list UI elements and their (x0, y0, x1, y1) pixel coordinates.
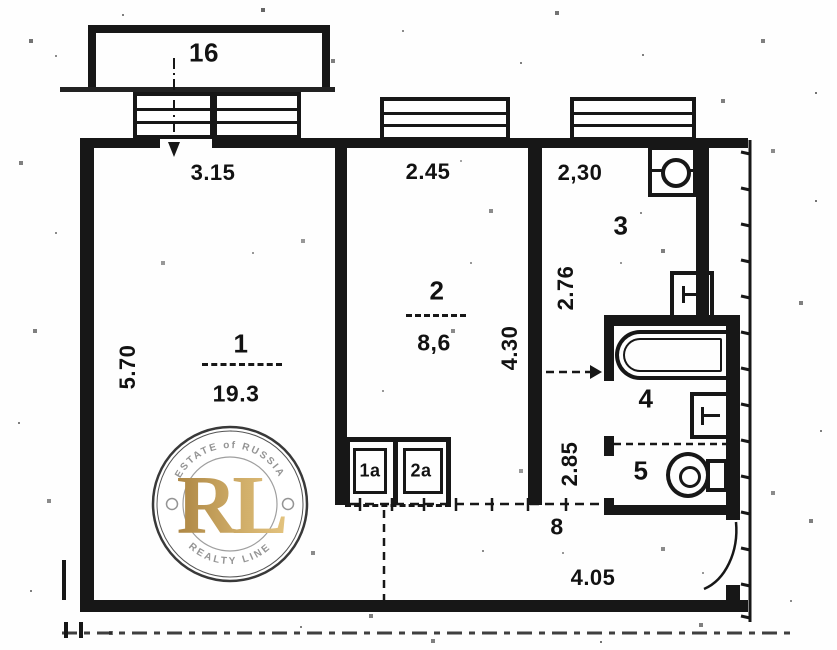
wall-bath-left-upper (604, 315, 614, 381)
dim-kitchen-depth: 2.76 (553, 266, 579, 311)
dim-living-depth: 5.70 (115, 345, 141, 390)
room2-window (380, 97, 510, 141)
closet-b-label: 2a (410, 461, 431, 482)
stamp-monogram: RL (177, 459, 286, 552)
toilet-icon (666, 452, 710, 498)
room2-fraction-rule (406, 314, 466, 317)
room2-area-label: 8,6 (417, 330, 450, 357)
wall-wc-bottom (604, 505, 740, 515)
closet-divider (393, 440, 398, 504)
stamp-arc-bottom-text: REALTY LINE (186, 541, 274, 567)
window-pane-line (137, 108, 297, 111)
stove-burner (661, 158, 691, 188)
axis-arrow-icon (168, 142, 180, 157)
washbasin-icon (690, 392, 736, 439)
realty-line-watermark-stamp: ESTATE of RUSSIA REALTY LINE RL (149, 423, 311, 585)
edge-hatch-ticks (741, 152, 750, 618)
dim-room2-depth: 4.30 (497, 326, 523, 371)
stove-icon (648, 146, 697, 197)
balcony-window (133, 92, 301, 139)
stamp-dot-right-icon (283, 499, 294, 510)
faucet-mark (682, 286, 685, 303)
toilet-bowl-inner (679, 466, 701, 488)
faucet-mark (703, 414, 720, 417)
window-pane-line (137, 121, 297, 124)
kitchen-number-label: 3 (614, 211, 629, 242)
svg-text:ESTATE of RUSSIA: ESTATE of RUSSIA (173, 440, 287, 480)
dim-kitchen-width: 2,30 (558, 160, 603, 186)
room1-area-label: 19.3 (213, 381, 260, 408)
dim-room2-width: 2.45 (406, 159, 451, 185)
stray-wall-marks (64, 560, 81, 638)
wc-number-label: 5 (634, 456, 649, 487)
floor-plan: 16 1a 2a (0, 0, 837, 650)
stamp-second-ring (157, 431, 303, 577)
bathtub-icon (615, 330, 730, 380)
stamp-inner-ring (183, 457, 277, 551)
room1-fraction-rule (202, 363, 282, 366)
dim-hall-depth: 2.85 (557, 442, 583, 487)
dim-hall-width: 4.05 (571, 565, 616, 591)
balcony-wall-right (322, 25, 330, 90)
balcony-wall-left (88, 25, 96, 90)
kitchen-window (570, 97, 696, 141)
window-pane-line (574, 124, 692, 127)
wall-room2-hall (528, 148, 542, 505)
window-pane-line (574, 112, 692, 115)
svg-text:REALTY LINE: REALTY LINE (186, 541, 274, 567)
entry-door-arc (704, 522, 736, 589)
scan-noise (0, 0, 2, 2)
stamp-arc-top-text: ESTATE of RUSSIA (173, 440, 287, 480)
toilet-tank (706, 459, 728, 492)
room2-number-label: 2 (430, 276, 445, 307)
closet-a-label: 1a (359, 461, 380, 482)
balcony-number-label: 16 (189, 38, 219, 69)
dim-living-width: 3.15 (191, 160, 236, 186)
window-pane-line (384, 124, 506, 127)
stamp-dot-left-icon (167, 499, 178, 510)
kitchen-door-arrow-icon (590, 365, 602, 379)
wall-bath-right-lower (726, 585, 740, 612)
stamp-outer-ring (153, 427, 307, 581)
hall-number-label: 8 (550, 514, 563, 541)
wall-bath-left-mid (604, 436, 614, 456)
wall-bottom (80, 600, 748, 612)
kitchen-sink-icon (670, 271, 714, 319)
room1-number-label: 1 (234, 329, 249, 360)
balcony-window-divider (210, 92, 217, 139)
bathtub-inner (623, 338, 722, 372)
wall-left (80, 138, 94, 612)
window-pane-line (384, 112, 506, 115)
balcony-wall-top (88, 25, 330, 33)
bath-number-label: 4 (639, 384, 654, 415)
